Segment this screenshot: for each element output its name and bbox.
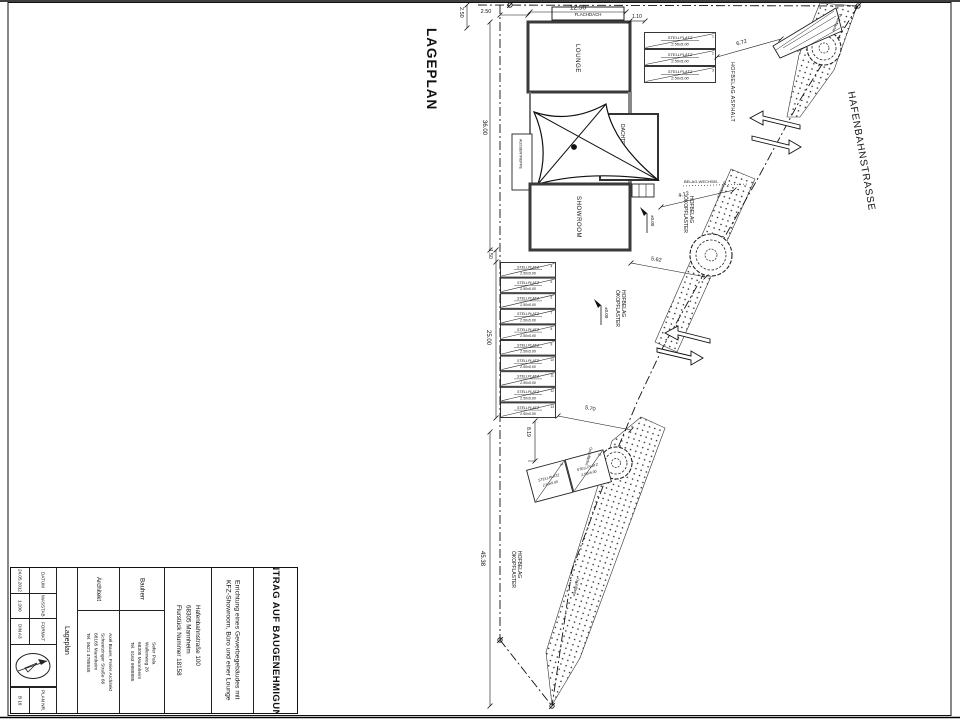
oeko-line2: ÖKOPFLASTER [614, 290, 621, 327]
level-value: ±0.00 [650, 215, 655, 227]
belagwechsel-label: BELAG-WECHSEL [684, 179, 719, 184]
oeko-line2: ÖKOPFLASTER [510, 551, 517, 588]
north-arrow [11, 645, 56, 687]
project-description: Errichtung eines Gewerbegebäudes mit KFZ… [223, 580, 241, 701]
dim-5-62: 5.62 [650, 256, 662, 264]
format-value: DIN A3 [11, 619, 30, 644]
address-section: Hafenbahnstraße 100 68305 Mannheim Flurs… [165, 568, 212, 713]
flachdach-label: FLACHDACH [575, 12, 602, 17]
aussentreppe-label: AUSSENTREPPE [519, 139, 523, 169]
stall-number: 13 [551, 405, 555, 409]
oeko-line1: HOFBELAG [620, 290, 626, 317]
level-marker-icon: ±0.00 [640, 207, 655, 233]
architect-details: Axel Bauer, Freier Architekt Schwetzinge… [84, 633, 113, 691]
dim-8-19: 8.19 [525, 427, 531, 437]
annex-box [632, 184, 654, 197]
project-line: Errichtung eines Gewerbegebäudes mit [232, 580, 241, 701]
massstab-label: MASSTAB [30, 594, 56, 619]
title-block: 24.05.2012 DATUM 1:200 MASSTAB DIN A3 FO… [10, 567, 298, 714]
parking-stalls-column: 4 5 6 7 8 9 10 11 12 13 [501, 263, 556, 418]
oeko-line1: HOFBELAG [688, 196, 694, 223]
architect-line: Schwetzinger Straße 66 [98, 633, 105, 691]
oekopflaster-label: HOFBELAGÖKOPFLASTER [510, 551, 522, 588]
plan-nr-label: PLAN NR. [30, 688, 56, 713]
stall-number: 1 [712, 35, 714, 39]
meta-massstab: 1:200 MASSTAB [11, 594, 56, 620]
dim-2-50-h: 2.50 [481, 9, 492, 15]
entry-arrow-icon [657, 348, 703, 365]
buildings: FLACHDACH LOUNGE AUSSENTREPPE DACHTERRAS… [512, 7, 658, 250]
architect-line: 68165 Mannheim [91, 633, 98, 691]
project-line: KFZ-Showroom, Büro und einer Lounge [223, 580, 232, 701]
architect-label: Architekt [95, 577, 102, 601]
architect-section: Architekt Axel Bauer, Freier Architekt S… [78, 568, 121, 713]
oeko-line1: HOFBELAG [516, 551, 522, 578]
format-label: FORMAT [30, 619, 56, 644]
massstab-value: 1:200 [11, 594, 30, 619]
dim-45-38: 45.38 [479, 551, 485, 567]
stall-number: 12 [551, 389, 555, 393]
north-arrow-icon [11, 646, 55, 686]
application-title: ANTRAG AUF BAUGENEHMIGUNG [270, 568, 281, 713]
stall-number: 9 [551, 342, 553, 346]
meta-format: DIN A3 FORMAT [11, 619, 56, 645]
oekopflaster-label: HOFBELAGÖKOPFLASTER [614, 290, 626, 327]
address-line: Hafenbahnstraße 100 [192, 605, 201, 676]
stall-number: 7 [551, 311, 553, 315]
dim-1-50: 1.50 [487, 249, 493, 259]
client-line: Wallenweg 26 [142, 642, 149, 681]
stall-number: 11 [551, 374, 555, 378]
dim-6-72: 6.72 [736, 39, 748, 48]
street-name-label: HAFENBAHNSTRASSE [845, 91, 877, 212]
parking-stalls-top: 1 2 3 [645, 33, 716, 83]
project-address: Hafenbahnstraße 100 68305 Mannheim Flurs… [174, 605, 202, 676]
plan-name: Lageplan [63, 626, 70, 655]
drawing-sheet: STELLPLATZ 2.50x5.00 STELLPLATZ 2.50x5.0… [0, 0, 960, 720]
client-label: Bauherr [139, 578, 146, 600]
architect-line: Tel. 0621 4785545 [84, 633, 91, 691]
stall-number: 2 [712, 52, 714, 56]
address-line: Flurstück Nummer 18158 [174, 605, 183, 676]
tree-icon [690, 234, 732, 276]
application-title-section: ANTRAG AUF BAUGENEHMIGUNG [254, 568, 297, 713]
entry-arrow-icon [752, 136, 801, 154]
page-title: LAGEPLAN [424, 28, 439, 110]
meta-plan-nr: B 18 PLAN NR. [11, 687, 56, 713]
dim-12-50: 12.50 [570, 5, 587, 12]
stall-number: 3 [712, 69, 714, 73]
asphalt-label: HOFBELAG ASPHALT [729, 62, 735, 123]
plan-name-section: Lageplan [57, 568, 78, 713]
address-line: 68305 Mannheim [183, 605, 192, 676]
dim-25-00: 25.00 [485, 330, 491, 346]
project-section: Errichtung eines Gewerbegebäudes mit KFZ… [212, 568, 255, 713]
oekopflaster-label: HOFBELAGÖKOPFLASTER [682, 196, 694, 233]
dim-2-50-v: 2.50 [458, 7, 464, 18]
client-details: Sefer Pala Wallenweg 26 68305 Mannheim T… [128, 642, 157, 681]
showroom-label: SHOWROOM [575, 196, 581, 238]
datum-value: 24.05.2012 [11, 568, 30, 593]
lounge-label: LOUNGE [574, 44, 580, 73]
stall-number: 4 [551, 264, 553, 268]
dim-5-70: 5.70 [584, 405, 596, 413]
stall-number: 5 [551, 280, 553, 284]
oeko-line2: ÖKOPFLASTER [682, 196, 689, 233]
plan-nr-value: B 18 [11, 688, 30, 713]
level-value: ±0.00 [604, 307, 609, 319]
client-section: Bauherr Sefer Pala Wallenweg 26 68305 Ma… [120, 568, 165, 713]
client-line: 68305 Mannheim [135, 642, 142, 681]
stall-number: 10 [551, 358, 555, 362]
client-line: Sefer Pala [149, 642, 156, 681]
dim-36-00: 36.00 [481, 120, 487, 136]
client-line: Tel. 0163 9888885 [128, 642, 135, 681]
dim-1-10: 1.10 [632, 14, 642, 20]
stall-number: 8 [551, 327, 553, 331]
level-marker-icon: ±0.00 [594, 299, 609, 325]
green-strips [546, 3, 857, 705]
stall-number: 6 [551, 296, 553, 300]
datum-label: DATUM [30, 568, 56, 593]
architect-line: Axel Bauer, Freier Architekt [106, 633, 113, 691]
meta-datum: 24.05.2012 DATUM [11, 568, 56, 594]
title-block-meta-section: 24.05.2012 DATUM 1:200 MASSTAB DIN A3 FO… [11, 568, 57, 713]
